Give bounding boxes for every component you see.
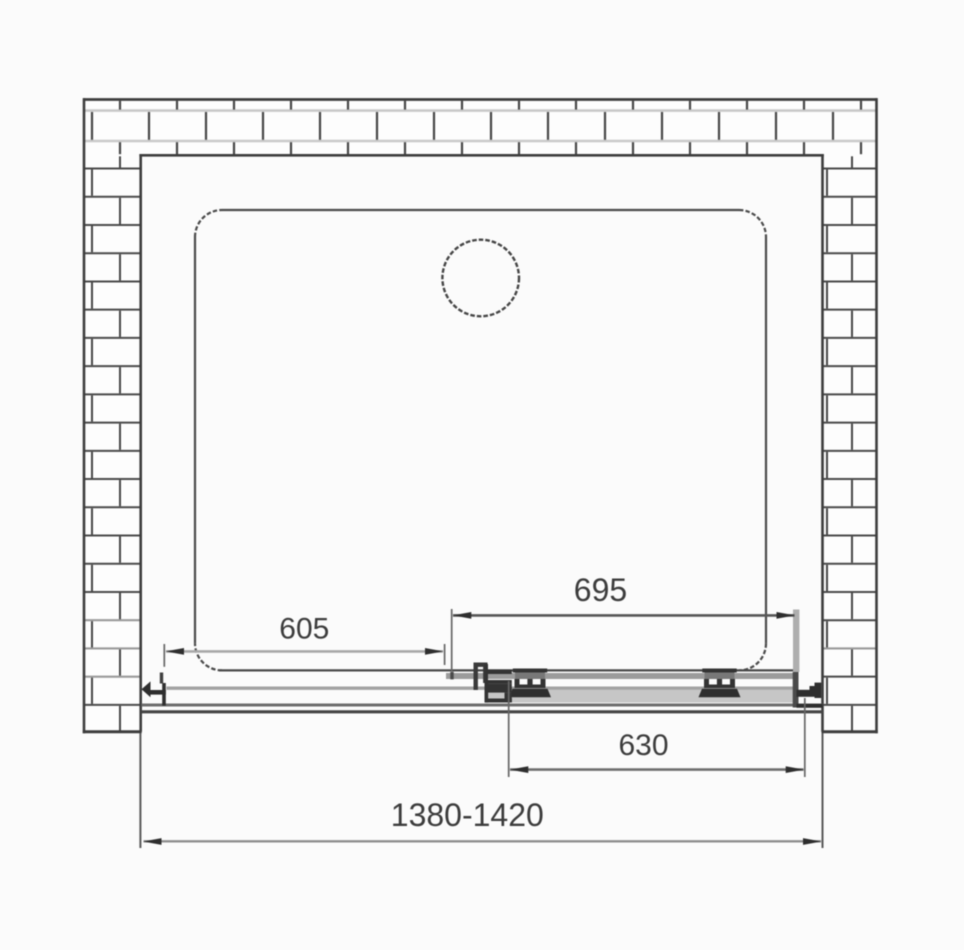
- svg-text:605: 605: [279, 613, 329, 646]
- svg-text:630: 630: [618, 729, 668, 762]
- svg-text:1380-1420: 1380-1420: [391, 797, 544, 833]
- svg-text:695: 695: [574, 572, 627, 608]
